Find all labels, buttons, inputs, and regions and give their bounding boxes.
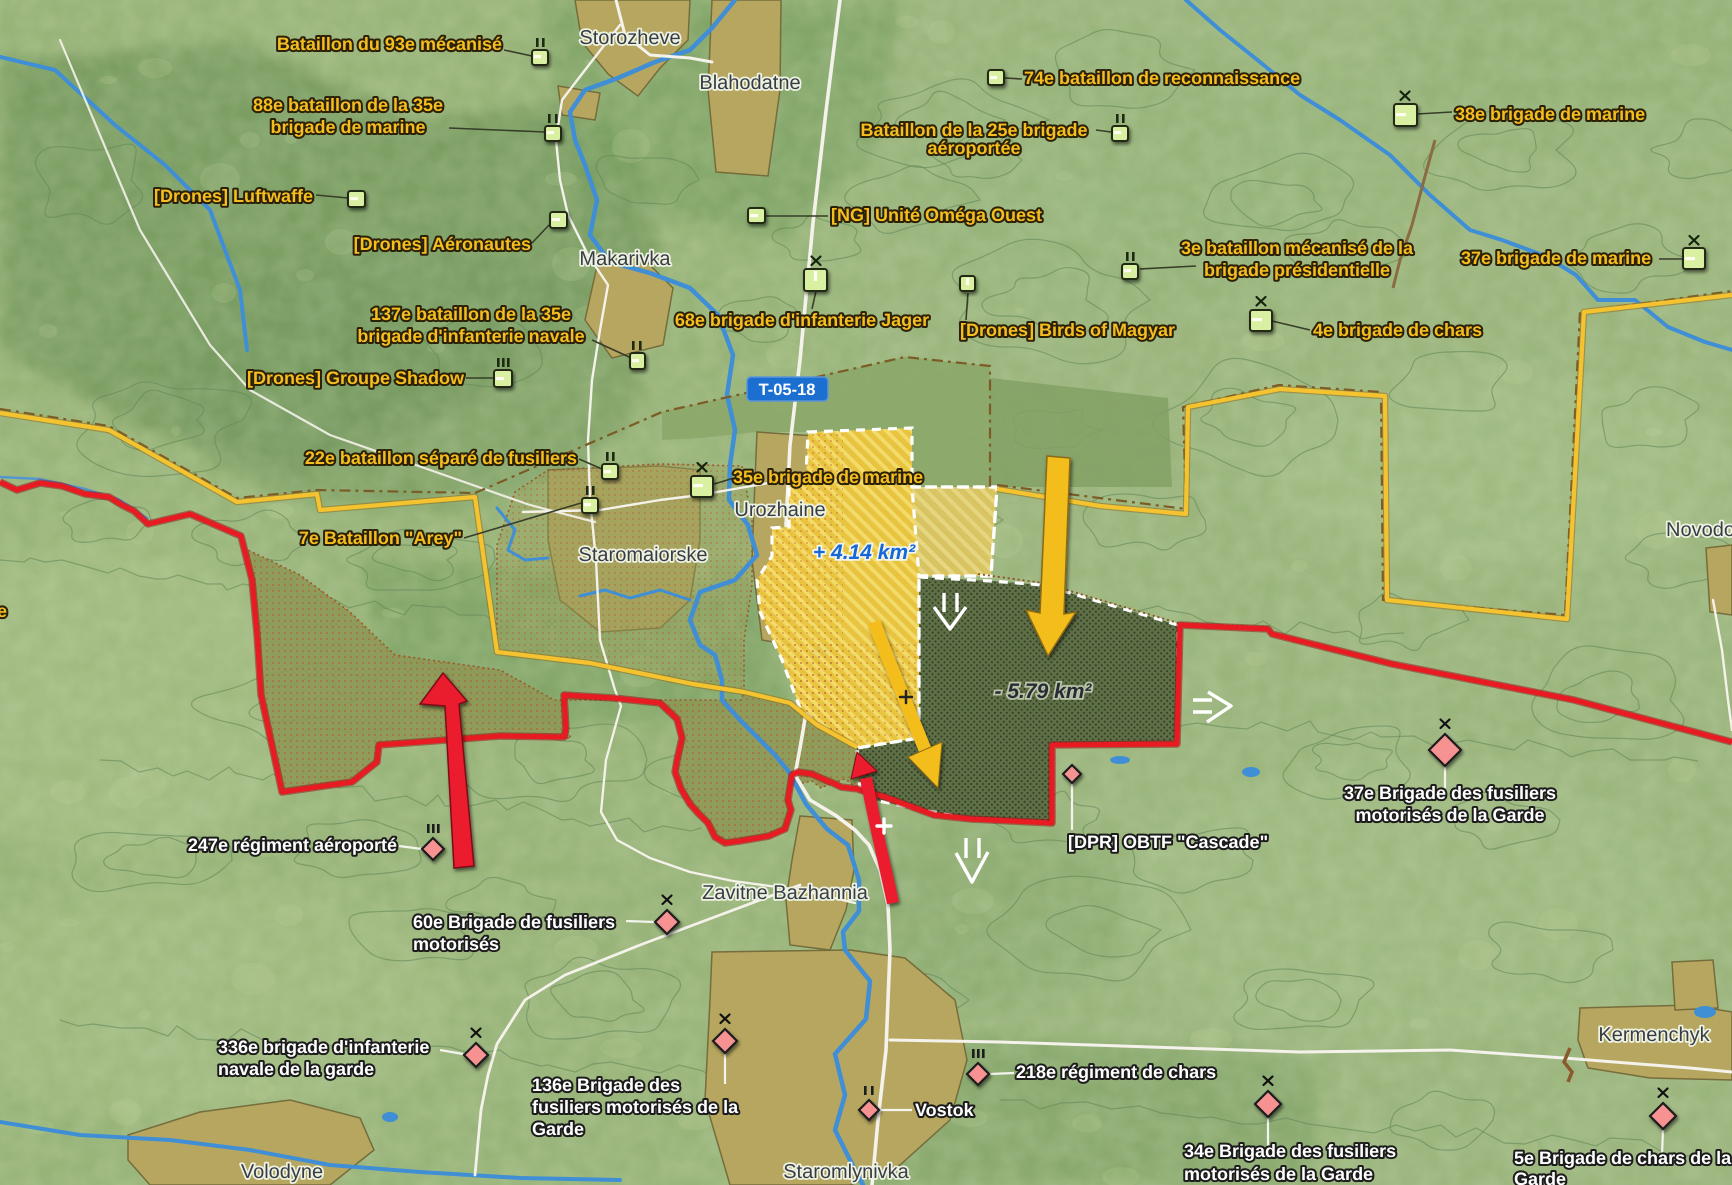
svg-text:Garde: Garde <box>1514 1169 1566 1185</box>
svg-text:4e brigade de chars: 4e brigade de chars <box>1313 320 1482 340</box>
svg-text:- 5.79 km²: - 5.79 km² <box>995 680 1093 703</box>
svg-text:[Drones] Birds of Magyar: [Drones] Birds of Magyar <box>960 320 1175 340</box>
svg-text:218e régiment de chars: 218e régiment de chars <box>1016 1062 1216 1082</box>
svg-text:[DPR] OBTF "Cascade": [DPR] OBTF "Cascade" <box>1068 832 1268 852</box>
svg-text:7e Bataillon "Arey": 7e Bataillon "Arey" <box>299 528 462 548</box>
svg-text:Vostok: Vostok <box>915 1100 975 1120</box>
svg-text:60e Brigade de fusiliers: 60e Brigade de fusiliers <box>413 912 615 932</box>
svg-text:Bataillon du 93e mécanisé: Bataillon du 93e mécanisé <box>277 34 502 54</box>
svg-text:[Drones] Luftwaffe: [Drones] Luftwaffe <box>154 186 313 206</box>
svg-text:Novodonetske: Novodonetske <box>1666 519 1732 541</box>
svg-text:Volodyne: Volodyne <box>241 1161 323 1183</box>
svg-text:T-05-18: T-05-18 <box>759 381 816 399</box>
svg-text:+ 4.14 km²: + 4.14 km² <box>813 541 916 564</box>
svg-text:motorisés de la Garde: motorisés de la Garde <box>1355 805 1544 825</box>
svg-text:37e brigade de marine: 37e brigade de marine <box>1461 248 1651 268</box>
svg-text:Makarivka: Makarivka <box>579 248 671 270</box>
svg-text:brigade de marine: brigade de marine <box>270 117 425 137</box>
svg-text:Blahodatne: Blahodatne <box>699 72 800 94</box>
svg-text:247e régiment aéroporté: 247e régiment aéroporté <box>188 835 397 855</box>
svg-text:Zavitne Bazhannia: Zavitne Bazhannia <box>702 882 869 904</box>
svg-text:[Drones] Groupe Shadow: [Drones] Groupe Shadow <box>247 368 465 388</box>
svg-text:137e bataillon de la 35e: 137e bataillon de la 35e <box>371 304 571 324</box>
svg-text:Urozhaine: Urozhaine <box>734 499 825 521</box>
svg-text:336e brigade d'infanterie: 336e brigade d'infanterie <box>218 1037 429 1057</box>
svg-text:[Drones] Aéronautes: [Drones] Aéronautes <box>354 234 531 254</box>
svg-text:e: e <box>0 601 7 621</box>
svg-text:Garde: Garde <box>532 1119 584 1139</box>
svg-text:Staromaiorske: Staromaiorske <box>579 544 708 566</box>
svg-text:Kermenchyk: Kermenchyk <box>1598 1024 1710 1046</box>
svg-text:motorisés de la Garde: motorisés de la Garde <box>1184 1164 1373 1184</box>
svg-text:brigade présidentielle: brigade présidentielle <box>1204 260 1390 280</box>
svg-text:22e bataillon séparé de fusili: 22e bataillon séparé de fusiliers <box>305 448 577 468</box>
svg-text:brigade d'infanterie navale: brigade d'infanterie navale <box>357 326 584 346</box>
svg-text:35e brigade de marine: 35e brigade de marine <box>733 467 923 487</box>
svg-text:aéroportée: aéroportée <box>927 138 1020 158</box>
svg-text:3e bataillon mécanisé de la: 3e bataillon mécanisé de la <box>1181 238 1414 258</box>
svg-text:34e Brigade des fusiliers: 34e Brigade des fusiliers <box>1184 1141 1396 1161</box>
svg-text:5e Brigade de chars de la: 5e Brigade de chars de la <box>1514 1148 1732 1168</box>
svg-text:Staromlynivka: Staromlynivka <box>783 1161 909 1183</box>
svg-text:Bataillon de la 25e brigade: Bataillon de la 25e brigade <box>860 120 1087 140</box>
svg-text:38e brigade de marine: 38e brigade de marine <box>1455 104 1645 124</box>
svg-text:motorisés: motorisés <box>413 934 499 954</box>
svg-text:68e brigade d'infanterie Jager: 68e brigade d'infanterie Jager <box>675 310 929 330</box>
svg-text:Storozheve: Storozheve <box>579 27 680 49</box>
svg-text:fusiliers motorisés de la: fusiliers motorisés de la <box>532 1097 739 1117</box>
svg-text:[NG] Unité Oméga Ouest: [NG] Unité Oméga Ouest <box>831 205 1042 225</box>
svg-text:navale de la garde: navale de la garde <box>218 1059 374 1079</box>
svg-text:37e Brigade des fusiliers: 37e Brigade des fusiliers <box>1344 783 1556 803</box>
svg-text:136e Brigade des: 136e Brigade des <box>532 1075 680 1095</box>
svg-text:74e bataillon de reconnaissanc: 74e bataillon de reconnaissance <box>1024 68 1300 88</box>
svg-text:88e bataillon de la 35e: 88e bataillon de la 35e <box>253 95 443 115</box>
